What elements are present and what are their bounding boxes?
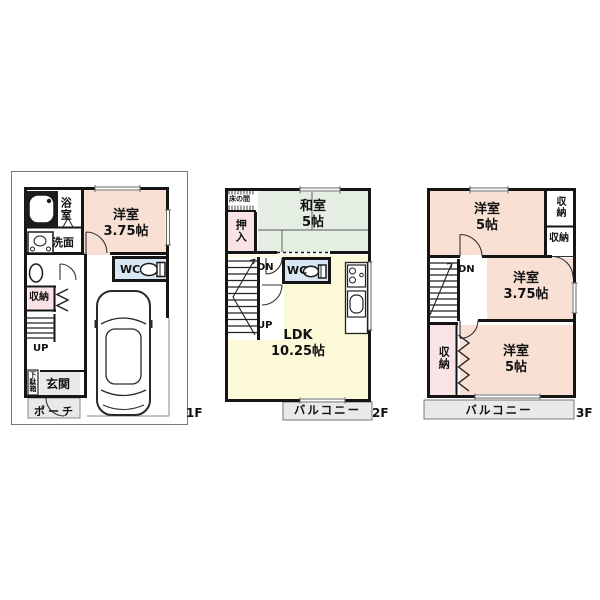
washbasin-icon (28, 232, 53, 253)
ldk-label: LDK 10.25帖 (256, 328, 340, 359)
stairs-dn-2f-label: DN (257, 262, 274, 274)
toilet-icon-hall-1f (30, 264, 43, 282)
floor-label-1f: 1F (186, 406, 203, 420)
closet-west-label: 収納 (437, 346, 450, 370)
bedroom-north-label: 洋室 5帖 (455, 202, 519, 233)
closet-east-label: 収納 (549, 233, 569, 245)
balcony-3f-label: バルコニー (424, 404, 574, 418)
porch-label: ポーチ (34, 405, 76, 418)
wc-2f-label: WC (287, 264, 307, 277)
washitsu-label: 和室 5帖 (287, 199, 339, 230)
stairs-up-1f-label: UP (33, 343, 48, 355)
washroom-label: 洗面 (52, 236, 74, 249)
car-icon (95, 291, 153, 415)
closet-ne-label: 収納 (553, 196, 565, 218)
bedroom-center-label: 洋室 3.75帖 (494, 271, 558, 302)
wc-1f-label: WC (120, 263, 140, 276)
bedroom-1f-label: 洋室 3.75帖 (90, 208, 162, 239)
stairs-dn-3f-label: DN (458, 264, 475, 276)
bedroom-south-label: 洋室 5帖 (484, 344, 548, 375)
bath-label: 浴室 (59, 197, 72, 221)
kitchen-counter-area (345, 262, 368, 334)
floor-label-2f: 2F (372, 406, 389, 420)
floor-label-3f: 3F (576, 406, 593, 420)
stairs-2f-area (227, 257, 258, 340)
balcony-2f-label: バルコニー (283, 404, 372, 418)
toilet-icon-wc-1f (141, 263, 166, 277)
entrance-label: 玄関 (46, 377, 70, 391)
oshiire-label: 押入 (234, 219, 247, 243)
floorplan-page: 浴室 洗面 洋室 3.75帖 WC 収納 UP 下駄箱 玄関 ポーチ 1F (0, 0, 600, 600)
tokonoma-label: 床の間 (229, 195, 250, 203)
shoebox-label: 下駄箱 (29, 371, 37, 392)
closet-1f-label: 収納 (29, 292, 49, 304)
bathtub-icon (25, 191, 58, 227)
